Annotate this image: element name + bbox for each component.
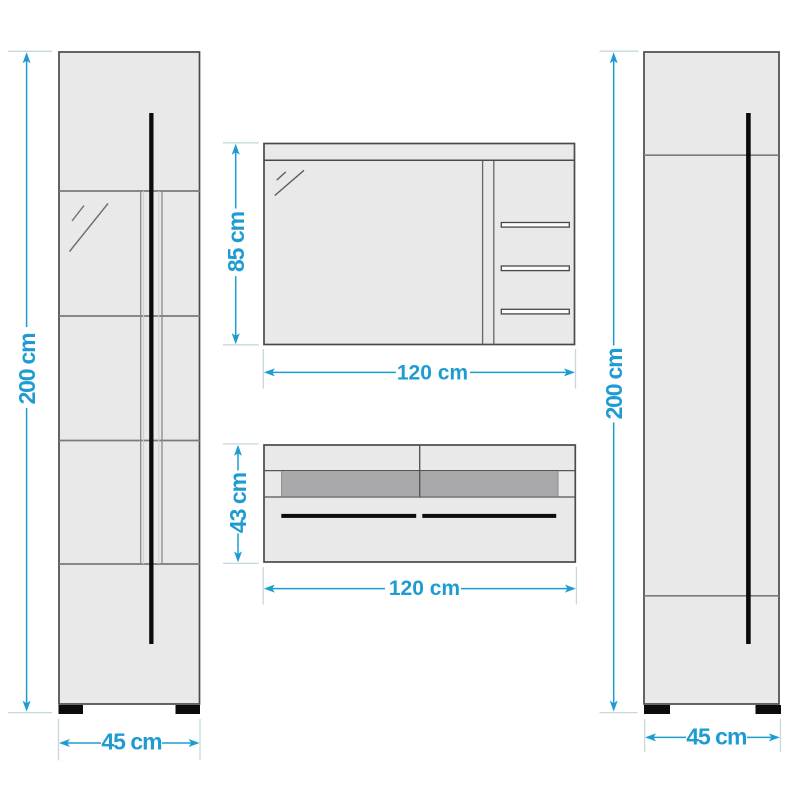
svg-text:200 cm: 200 cm — [601, 348, 627, 420]
svg-text:45 cm: 45 cm — [101, 729, 162, 755]
svg-text:43 cm: 43 cm — [225, 472, 251, 533]
svg-text:120 cm: 120 cm — [397, 361, 468, 384]
svg-text:45 cm: 45 cm — [686, 724, 747, 750]
svg-text:120 cm: 120 cm — [389, 577, 460, 600]
svg-text:200 cm: 200 cm — [14, 333, 40, 405]
svg-text:85 cm: 85 cm — [223, 211, 249, 272]
